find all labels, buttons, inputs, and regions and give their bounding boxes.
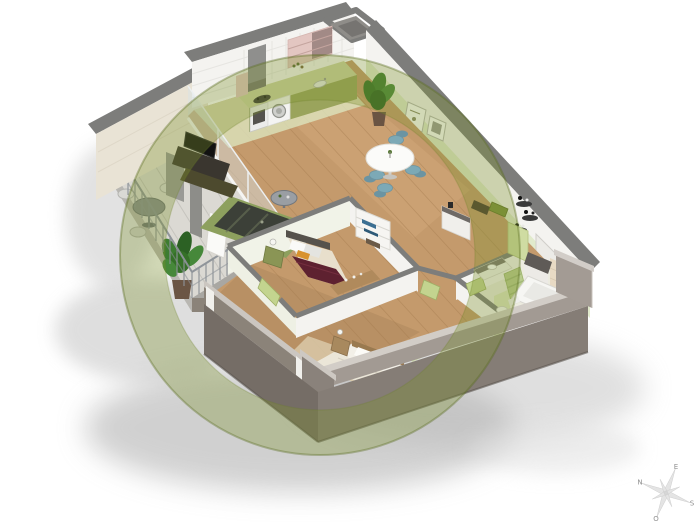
bedside-lamp [338,330,343,335]
wall-stub [190,180,202,238]
compass-label-west: O [653,515,659,522]
bedside-lamp [270,239,276,245]
compass-label-east: E [674,463,678,471]
floor-plan-screenshot: N E S O [0,0,700,522]
compass-rose: N E S O [637,463,694,522]
coffee-machine [448,202,453,208]
plant-pot [172,280,192,299]
compass-label-south: S [690,500,695,508]
compass-label-north: N [637,479,642,487]
filler [192,298,206,312]
floor-plan-render: N E S O [0,0,700,522]
